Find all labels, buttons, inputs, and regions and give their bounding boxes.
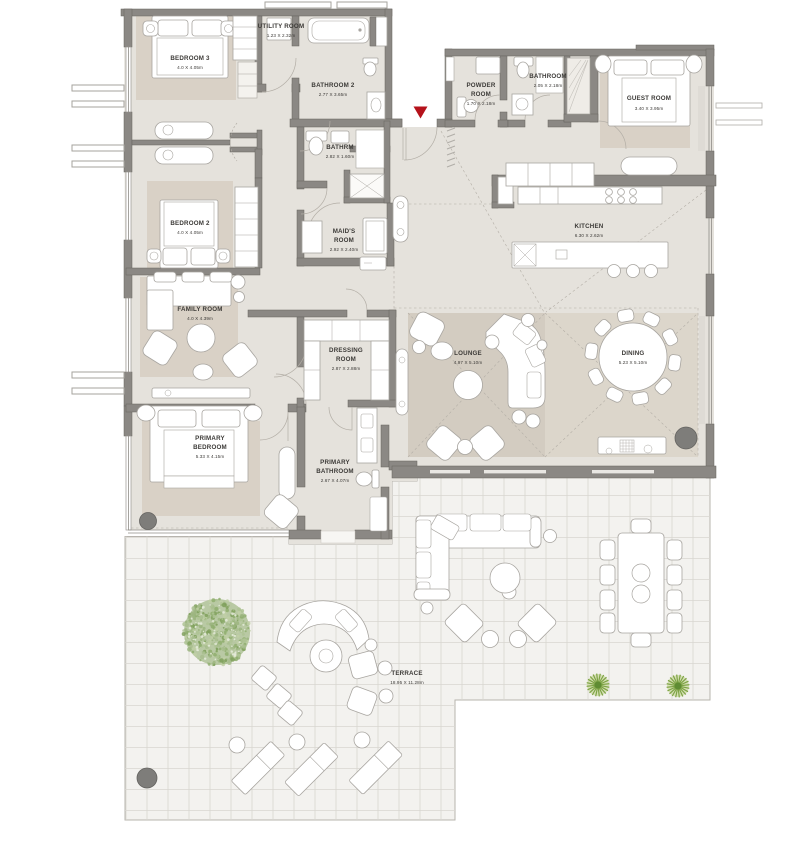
svg-text:3.40 X 3.95m: 3.40 X 3.95m bbox=[635, 106, 664, 111]
svg-text:2.05 X 2.18m: 2.05 X 2.18m bbox=[534, 83, 563, 88]
svg-text:TERRACE: TERRACE bbox=[391, 670, 422, 677]
svg-text:UTILITY ROOM: UTILITY ROOM bbox=[258, 23, 305, 30]
svg-text:1.23 X 2.32m: 1.23 X 2.32m bbox=[267, 33, 296, 38]
svg-text:PRIMARY: PRIMARY bbox=[195, 435, 225, 442]
svg-text:MAID'S: MAID'S bbox=[333, 228, 356, 235]
svg-text:KITCHEN: KITCHEN bbox=[575, 223, 604, 230]
svg-text:BATHROOM 2: BATHROOM 2 bbox=[311, 82, 354, 89]
svg-text:4.0 X 4.39m: 4.0 X 4.39m bbox=[187, 316, 213, 321]
svg-text:DINING: DINING bbox=[622, 350, 645, 357]
svg-text:2.92 X 2.40m: 2.92 X 2.40m bbox=[330, 247, 359, 252]
svg-text:1.70 X 2.18m: 1.70 X 2.18m bbox=[467, 101, 496, 106]
svg-text:6.30 X 2.62m: 6.30 X 2.62m bbox=[575, 233, 604, 238]
svg-text:PRIMARY: PRIMARY bbox=[320, 459, 350, 466]
svg-text:POWDER: POWDER bbox=[466, 82, 495, 89]
svg-text:ROOM: ROOM bbox=[334, 237, 354, 244]
svg-text:4.0 X 4.05m: 4.0 X 4.05m bbox=[177, 65, 203, 70]
svg-text:DRESSING: DRESSING bbox=[329, 347, 363, 354]
svg-text:FAMILY ROOM: FAMILY ROOM bbox=[177, 306, 222, 313]
svg-text:5.33 X 4.15m: 5.33 X 4.15m bbox=[196, 454, 225, 459]
svg-text:18.95 X 11.28m: 18.95 X 11.28m bbox=[390, 680, 424, 685]
svg-text:4.97 X 5.10m: 4.97 X 5.10m bbox=[454, 360, 483, 365]
svg-text:LOUNGE: LOUNGE bbox=[454, 350, 482, 357]
svg-text:2.67 X 4.07m: 2.67 X 4.07m bbox=[321, 478, 350, 483]
svg-text:ROOM: ROOM bbox=[336, 356, 356, 363]
svg-text:5.23 X 5.10m: 5.23 X 5.10m bbox=[619, 360, 648, 365]
svg-text:GUEST ROOM: GUEST ROOM bbox=[627, 95, 671, 102]
svg-text:2.82 X 1.60m: 2.82 X 1.60m bbox=[326, 154, 355, 159]
svg-text:BATHROOM: BATHROOM bbox=[316, 468, 354, 475]
svg-text:BATHRM: BATHRM bbox=[326, 144, 354, 151]
svg-text:2.87 X 2.88m: 2.87 X 2.88m bbox=[332, 366, 361, 371]
svg-text:BEDROOM 3: BEDROOM 3 bbox=[170, 55, 210, 62]
svg-text:BATHROOM: BATHROOM bbox=[529, 73, 567, 80]
svg-text:BEDROOM: BEDROOM bbox=[193, 444, 227, 451]
svg-text:ROOM: ROOM bbox=[471, 91, 491, 98]
svg-text:2.77 X 3.65m: 2.77 X 3.65m bbox=[319, 92, 348, 97]
svg-text:BEDROOM 2: BEDROOM 2 bbox=[170, 220, 210, 227]
svg-text:4.0 X 4.05m: 4.0 X 4.05m bbox=[177, 230, 203, 235]
